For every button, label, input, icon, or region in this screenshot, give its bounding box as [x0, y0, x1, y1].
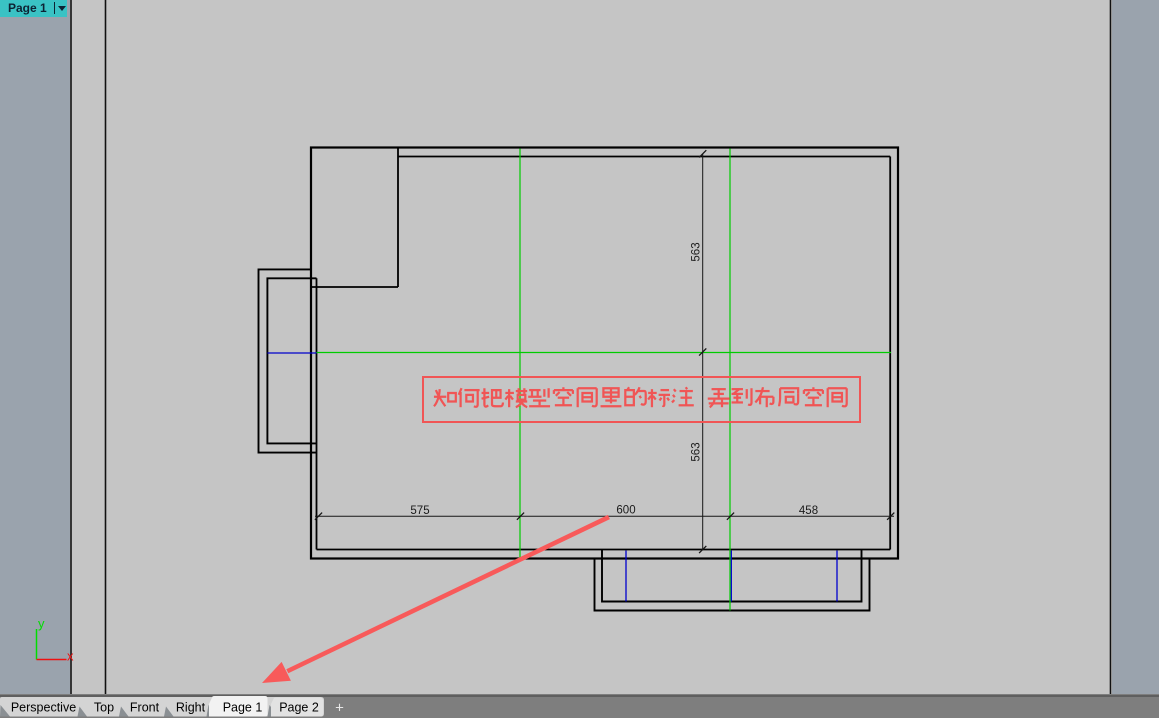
svg-text:Page 2: Page 2: [279, 701, 319, 715]
svg-text:Perspective: Perspective: [11, 701, 76, 715]
svg-text:Page 1: Page 1: [223, 701, 263, 715]
svg-text:Right: Right: [176, 701, 206, 715]
svg-text:+: +: [335, 700, 344, 717]
svg-text:Front: Front: [130, 701, 160, 715]
svg-text:Top: Top: [94, 701, 114, 715]
